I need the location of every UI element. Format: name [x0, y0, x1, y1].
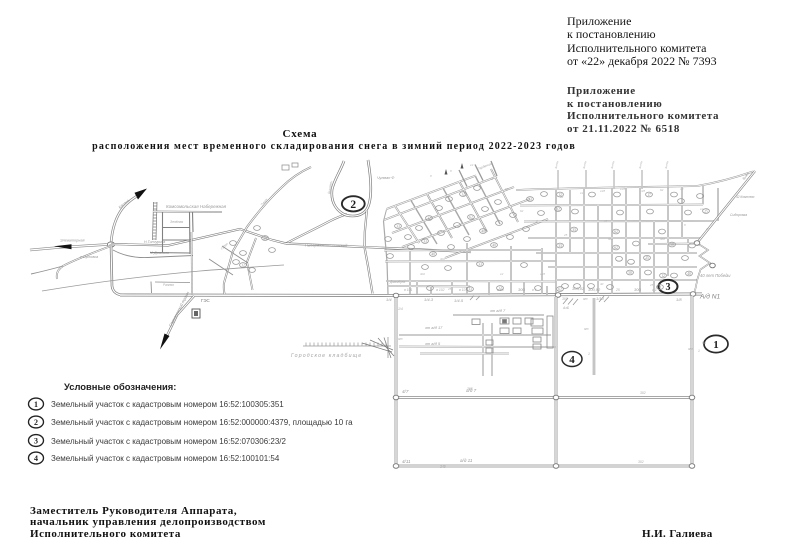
- svg-text:1: 1: [34, 400, 38, 409]
- svg-text:3: 3: [34, 437, 38, 446]
- svg-text:4: 4: [34, 454, 38, 463]
- svg-text:2: 2: [34, 418, 38, 427]
